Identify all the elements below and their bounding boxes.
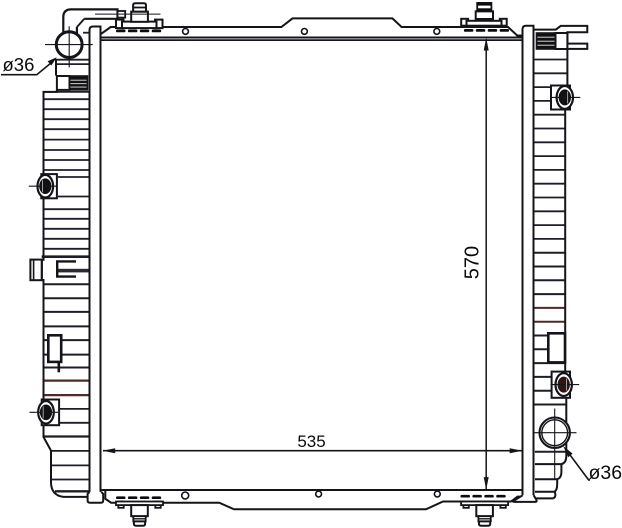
svg-text:ø36: ø36 (3, 54, 35, 75)
svg-text:570: 570 (462, 246, 484, 279)
svg-text:535: 535 (297, 432, 325, 451)
svg-text:ø36: ø36 (589, 462, 622, 484)
